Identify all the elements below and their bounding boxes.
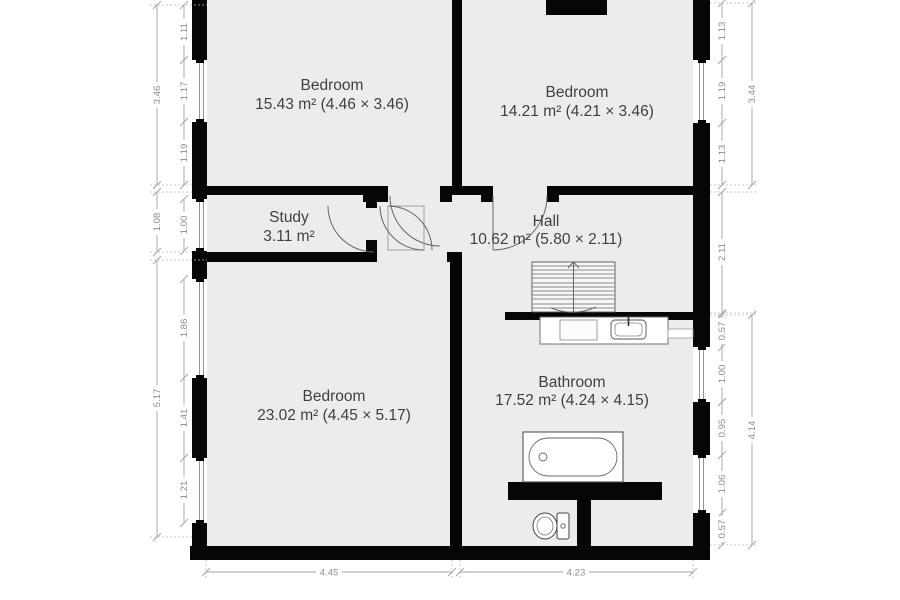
wall-mid-vertical [450,252,462,560]
dimension-label: 1.08 [152,213,163,232]
room-name: Bedroom [303,388,366,405]
dimension-label: 0.57 [717,322,728,341]
dimension-label: 1.21 [179,481,190,500]
window [693,60,710,123]
room-area: 17.52 m² (4.24 × 4.15) [495,392,649,409]
dimension-label: 3.46 [152,86,163,105]
room-area: 10.62 m² (5.80 × 2.11) [470,231,623,248]
bathtub-icon [523,432,623,482]
dimension-label: 1.13 [717,145,728,164]
dimension-label: 4.45 [320,568,339,579]
window [192,279,207,378]
dimension-label: 1.00 [717,365,728,384]
room-name: Bedroom [546,84,609,101]
window [693,347,710,402]
room-name: Hall [533,213,560,230]
room-area: 3.11 m² [263,228,314,245]
dimension-label: 2.11 [717,243,728,261]
window [693,455,710,513]
room-area: 23.02 m² (4.45 × 5.17) [257,407,411,424]
cabinet [560,320,597,340]
dimension-label: 3.44 [747,84,758,103]
dimension-label: 1.41 [179,409,190,428]
dimension-label: 1.19 [179,144,190,163]
toilet-icon [533,513,569,539]
dimension-label: 1.11 [179,23,190,41]
chimney-block [546,0,607,15]
wall-bottom [190,546,710,560]
dimension-label: 0.95 [717,419,728,438]
room-name: Bedroom [301,77,364,94]
dimension-label: 4.23 [567,568,586,579]
wall-between-bedrooms [452,0,462,195]
floor-plan: 3.46 1.08 5.17 1.11 1.17 1.19 1.00 1.86 … [0,0,900,600]
toilet-tank [557,513,569,539]
staircase-icon [532,262,615,312]
room-name: Study [269,209,309,226]
wall-bath-partition [508,482,662,500]
dimension-label: 5.17 [152,389,163,408]
window [192,60,207,122]
dimension-label: 1.00 [179,216,190,235]
dimension-label: 1.86 [179,319,190,338]
dimension-label: 1.06 [717,475,728,494]
dimension-label: 1.13 [717,22,728,41]
dimension-label: 4.14 [747,420,758,439]
window [192,199,207,251]
room-name: Bathroom [538,374,605,391]
window [192,458,207,523]
ledge [668,329,693,338]
room-area: 14.21 m² (4.21 × 3.46) [500,103,654,120]
room-area: 15.43 m² (4.46 × 3.46) [255,96,409,113]
dimension-label: 0.57 [717,520,728,539]
dimension-label: 1.19 [717,82,728,101]
dimension-label: 1.17 [179,82,190,101]
